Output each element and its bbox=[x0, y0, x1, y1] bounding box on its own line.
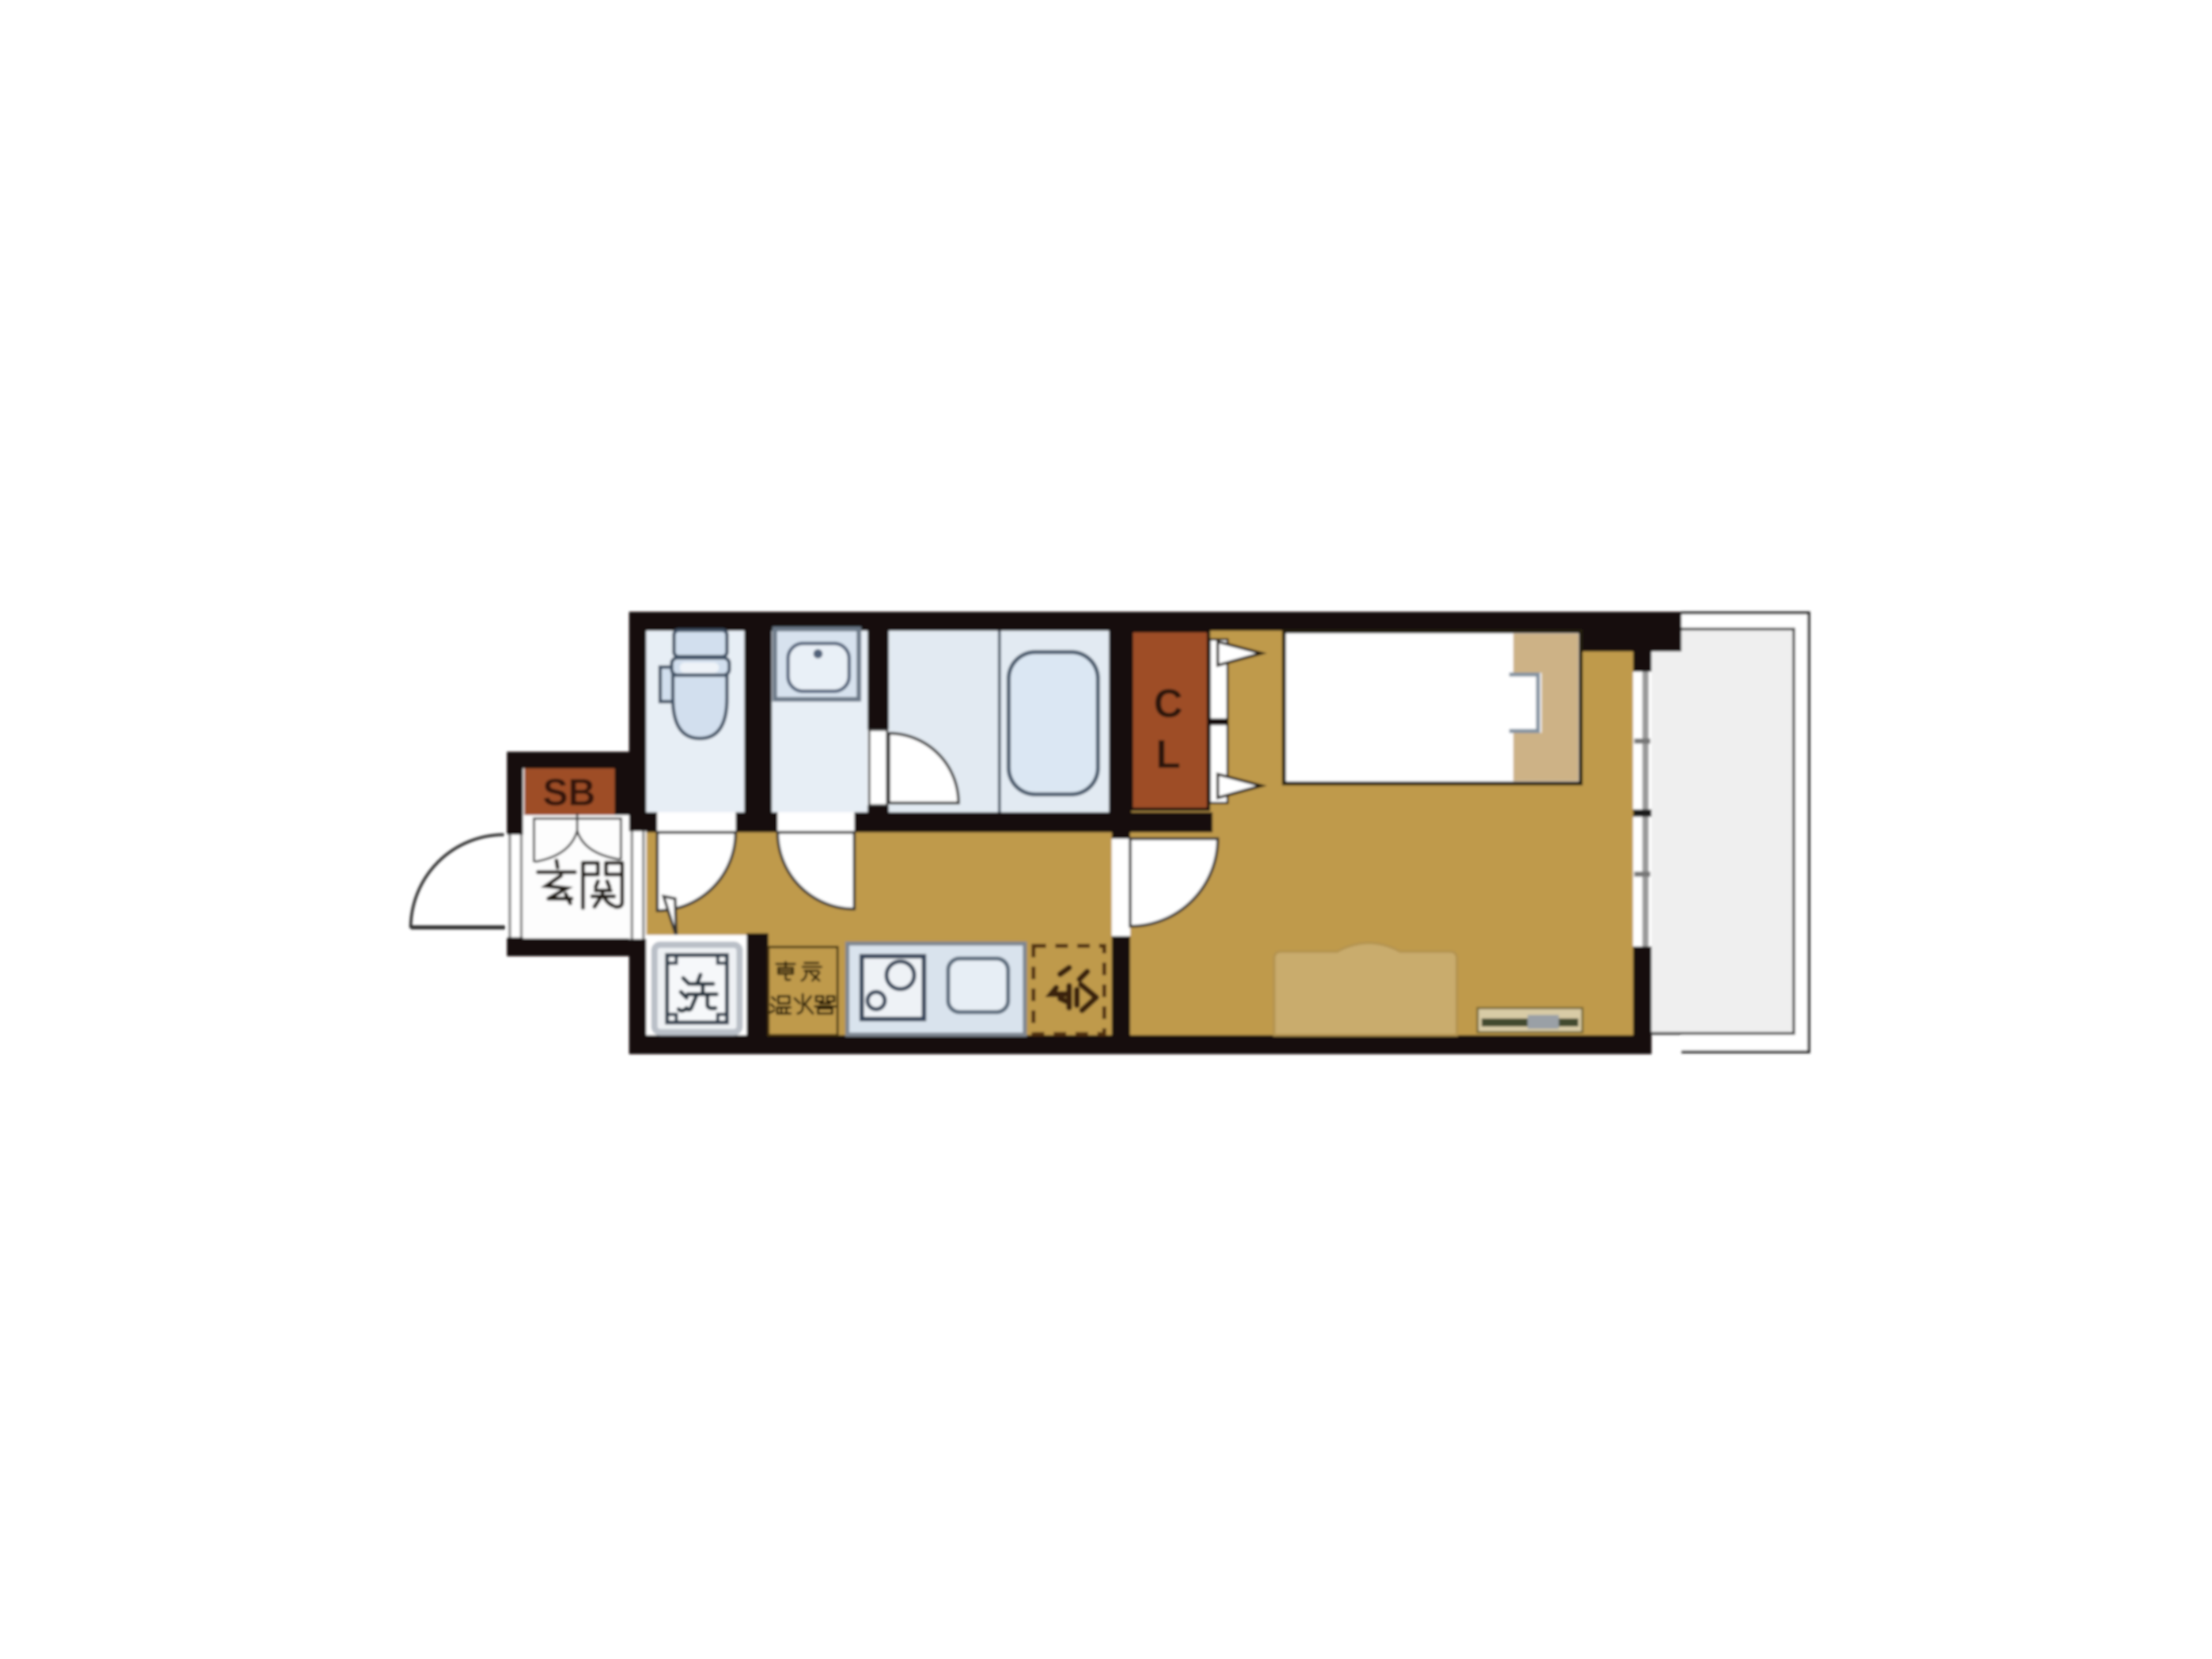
svg-text:L: L bbox=[1156, 732, 1181, 777]
svg-text:C: C bbox=[1154, 681, 1183, 726]
svg-text:SB: SB bbox=[543, 771, 596, 813]
